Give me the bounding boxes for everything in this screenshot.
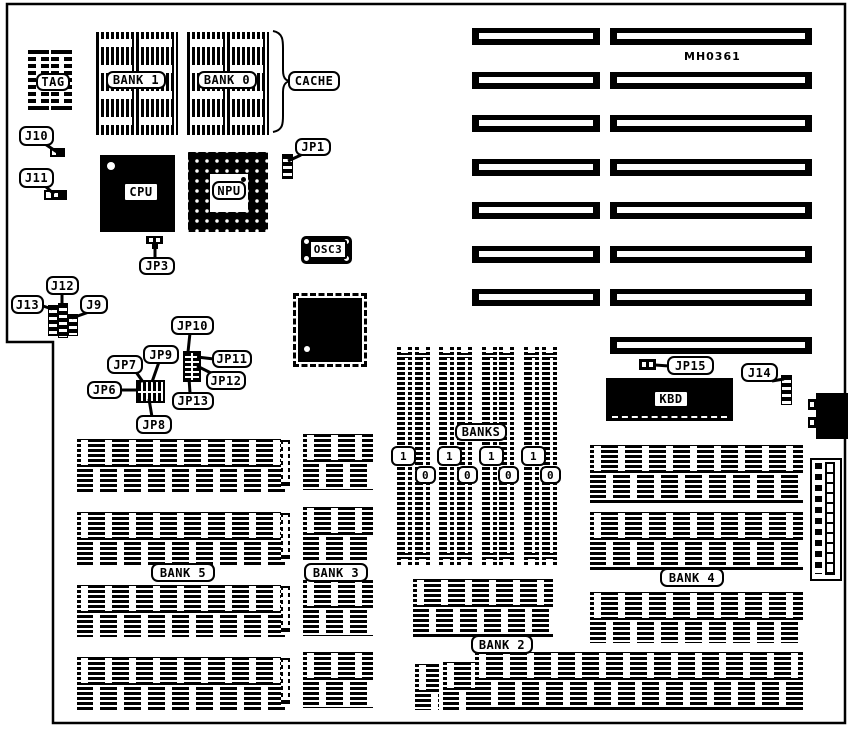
simm-bank1-label: 1 [521, 446, 546, 466]
jp13-label: JP13 [172, 392, 214, 410]
bank3-label: BANK 3 [304, 563, 368, 582]
simm-bank1-label: 1 [479, 446, 504, 466]
simm-bank1-label: 1 [437, 446, 462, 466]
motherboard-diagram: TAG BANK 1 BANK 0 CACHE J10 J11 CPU NPU … [0, 0, 851, 731]
jp11-label: JP11 [212, 350, 252, 368]
j10-label: J10 [19, 126, 54, 146]
jp12-label: JP12 [206, 371, 246, 390]
simm-bank0-label: 0 [498, 466, 519, 484]
npu-label: NPU [212, 181, 246, 200]
bank0-label: BANK 0 [197, 71, 257, 89]
j12-label: J12 [46, 276, 79, 295]
bank2-label: BANK 2 [471, 635, 533, 654]
bank5-label: BANK 5 [151, 563, 215, 582]
jp9-label: JP9 [143, 345, 179, 364]
cpu-label: CPU [123, 182, 159, 202]
jp1-label: JP1 [295, 138, 331, 156]
j13-label: J13 [11, 295, 44, 314]
cache-label: CACHE [288, 71, 340, 91]
jp8-label: JP8 [136, 415, 172, 434]
jp7-label: JP7 [107, 355, 143, 374]
j9-label: J9 [80, 295, 108, 314]
jp15-label: JP15 [667, 356, 714, 375]
bank1-label: BANK 1 [106, 71, 166, 89]
osc-label: OSC3 [309, 240, 347, 259]
tag-label: TAG [36, 73, 70, 91]
j11-label: J11 [19, 168, 54, 188]
kbd-label: KBD [653, 390, 689, 408]
j14-label: J14 [741, 363, 778, 382]
jp6-label: JP6 [87, 381, 122, 399]
jp10-label: JP10 [171, 316, 214, 335]
bank4-label: BANK 4 [660, 568, 724, 587]
simm-bank0-label: 0 [457, 466, 478, 484]
simm-bank1-label: 1 [391, 446, 416, 466]
banks-label: BANKS [455, 423, 507, 441]
jp3-label: JP3 [139, 257, 175, 275]
simm-bank0-label: 0 [415, 466, 436, 484]
simm-bank0-label: 0 [540, 466, 561, 484]
